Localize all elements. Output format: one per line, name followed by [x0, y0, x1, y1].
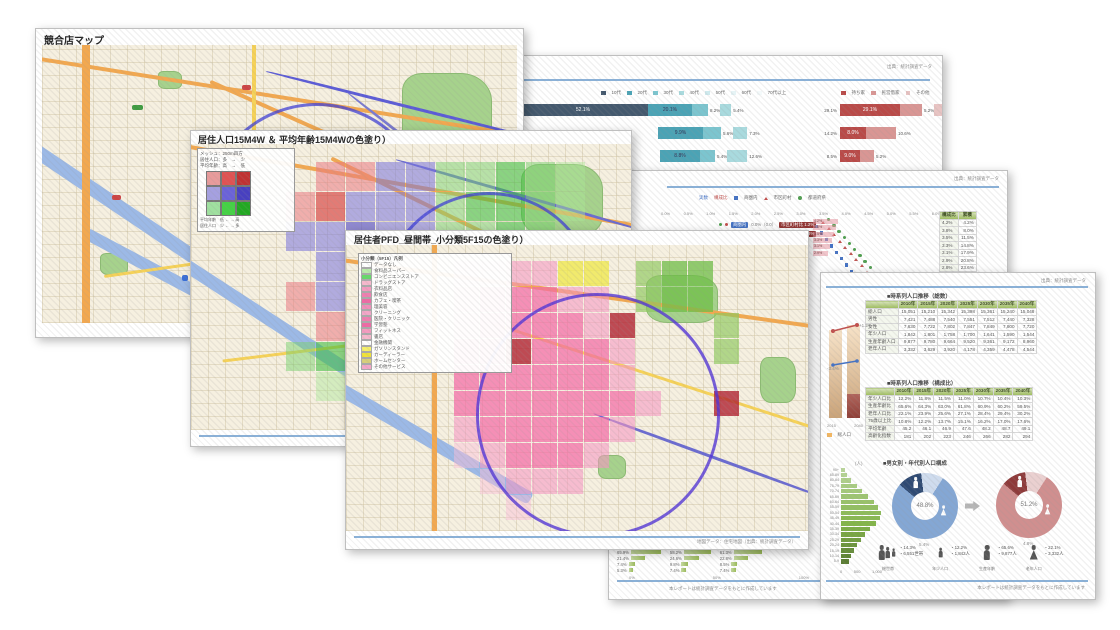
axis-tick-label: 4.5%: [864, 211, 873, 216]
pareto-row-label: 2.9%: [813, 251, 828, 256]
mesh-cell: [436, 162, 465, 191]
scatter-point: [830, 244, 833, 247]
axis-tick-label: 0: [840, 569, 842, 574]
axis-tick-label: 2040: [854, 423, 863, 428]
age-pyramid: 90+85-8980-8475-7970-7465-6960-6455-5950…: [824, 467, 881, 564]
bar-outside-label: 5.2%: [924, 108, 934, 113]
people-stat-label: 総世帯: [879, 566, 897, 572]
pyramid-bar: [841, 478, 852, 482]
pyramid-age-label: 40-44: [824, 522, 839, 526]
scatter-point: [840, 257, 843, 260]
axis-tick-label: 3.5%: [819, 211, 828, 216]
matrix-cell: [206, 171, 221, 186]
mini-bar: [684, 550, 711, 555]
donut-center-label: 51.2%: [1015, 491, 1043, 519]
bar-segment: 29.1%: [840, 104, 900, 116]
table-header-cell: 構成比: [940, 212, 959, 220]
pyramid-bar: [841, 473, 848, 477]
bar-outside-label: 10.6%: [898, 131, 911, 136]
pyramid-age-label: 75-79: [824, 484, 839, 488]
mesh-cell: [584, 261, 609, 286]
legend-label: 70代以上: [768, 90, 787, 96]
table-row: 生産年齢比65.6%64.3%63.0%61.8%60.9%60.2%59.5%: [866, 403, 1033, 411]
table-cell: 9,780: [918, 338, 938, 346]
mesh-cell: [496, 162, 525, 191]
map-label-chip: [112, 195, 121, 200]
table-cell: 1,544: [1017, 331, 1037, 339]
table-cell: 1,801: [918, 331, 938, 339]
pyramid-bar: [841, 500, 875, 504]
report-page-population: 出典：統計調査データ ■時系列人口推移（総数） 2010年2015年2020年2…: [820, 272, 1096, 600]
legend-label: 30代: [664, 90, 674, 96]
table-cell: 61.8%: [953, 403, 973, 411]
section-title-3: ■男女別・年代別人口構成: [883, 459, 947, 467]
map-label-chip: [132, 105, 143, 110]
donut-chart-male: 48.8%: [892, 473, 958, 539]
mini-bar-row: 7.4%: [720, 567, 762, 573]
bar-outside-label: 8.2%: [710, 108, 720, 113]
pyramid-age-label: 20-24: [824, 543, 839, 547]
trend-x-labels: 20152040: [827, 423, 863, 428]
pfd-legend-row: その他サービス: [361, 364, 509, 370]
scatter-point: [843, 246, 847, 249]
mesh-cell: [316, 222, 345, 251]
table-cell: 7,488: [918, 316, 938, 324]
mini-bar-label: 21.4%: [617, 556, 629, 561]
axis-tick-label: 2.0%: [751, 211, 760, 216]
scatter-point: [849, 252, 853, 255]
table-cell: 7,722: [918, 323, 938, 331]
mini-bar: [684, 556, 699, 561]
report-header-note: 出典：統計調査データ: [954, 176, 999, 182]
table-row: 3.8%8.0%: [940, 227, 977, 235]
legend-label: 実数: [699, 195, 708, 201]
pyramid-age-label: 60-64: [824, 500, 839, 504]
mini-bar: [629, 562, 635, 567]
scatter-point: [835, 251, 838, 254]
mesh-cell: [346, 162, 375, 191]
table-cell: 7,328: [1017, 316, 1037, 324]
mini-bar: [631, 550, 661, 555]
table-cell: 65.6%: [894, 403, 914, 411]
mini-bar: [734, 556, 748, 561]
table-header-cell: 2030年: [973, 388, 993, 396]
table-header-cell: 2035年: [993, 388, 1013, 396]
table-cell: 11.5%: [934, 395, 954, 403]
legend-swatch: [705, 91, 710, 96]
bar-segment: 20.1%: [648, 104, 692, 116]
arrow-icon: [965, 501, 980, 511]
table-cell: 4,359: [977, 346, 997, 354]
axis-tick-label: 0.5%: [684, 211, 693, 216]
stacked-bar-row: 52.1%20.1%8.2%5.4%: [518, 104, 778, 116]
table-cell: 7,540: [938, 316, 958, 324]
mini-bar-tables: 65.9%21.4%7.4%5.3%58.2%24.6%9.8%7.4%61.3…: [617, 549, 762, 573]
mesh-cell: [286, 342, 315, 371]
table-cell: 17.0%: [993, 418, 1013, 426]
people-stats-row: 総世帯・14.3%・6,551世帯年少人口・12.2%・1,842人生産年齢・6…: [879, 545, 1064, 572]
legend-swatch: [841, 91, 846, 96]
mini-bar-label: 65.9%: [617, 550, 629, 555]
mesh-cell: [406, 162, 435, 191]
people-stat-item: 老年人口・22.1%・3,332人: [1026, 545, 1064, 572]
street-map: 小分類（5F15）凡例 データなし食料品スーパーコンビニエンスストアドラッグスト…: [346, 245, 808, 531]
table-cell: 266: [973, 433, 993, 441]
mesh-cell: [316, 252, 345, 281]
table-cell: 63.0%: [934, 403, 954, 411]
bar-segment: 8.8%: [660, 150, 700, 162]
pareto-row-label: 3.1%: [813, 244, 830, 249]
mesh-cell: [316, 312, 345, 341]
scatter-point: [838, 240, 842, 243]
mini-bar-label: 7.4%: [617, 562, 627, 567]
mesh-cell: [636, 261, 661, 286]
table-cell: 45.2: [894, 425, 914, 433]
pyramid-age-label: 35-39: [824, 527, 839, 531]
table-row: 75歳以上比10.8%12.2%13.7%15.1%16.2%17.0%17.6…: [866, 418, 1033, 426]
matrix-cell: [236, 171, 251, 186]
trend-legend: 総人口: [827, 432, 851, 438]
table-cell: 15,361: [977, 308, 997, 316]
table-cell: 高齢化指数: [866, 433, 895, 441]
scatter-point: [863, 260, 866, 263]
legend-marker: [764, 197, 768, 200]
pyramid-bar: [841, 521, 876, 525]
mini-bar: [731, 562, 737, 567]
bar-lead-label: 14.2%: [811, 131, 837, 136]
table-cell: 15,048: [1017, 308, 1037, 316]
pyramid-bar: [841, 532, 865, 536]
table-cell: 7,421: [898, 316, 918, 324]
pfd-legend-items: データなし食料品スーパーコンビニエンスストアドラッグストア衣料品店飲食店カフェ・…: [361, 262, 509, 370]
mini-bar-row: 7.4%: [670, 567, 711, 573]
mesh-cell: [376, 162, 405, 191]
mini-bar-block: 58.2%24.6%9.8%7.4%: [670, 549, 711, 573]
map-footer: 地図データ：住宅地図（出典：統計調査データ）: [697, 539, 796, 545]
table-cell: 30.2%: [1013, 410, 1033, 418]
table-header-cell: 累積: [958, 212, 976, 220]
trade-area-ring: [476, 293, 720, 531]
table-cell: 13.7%: [934, 418, 954, 426]
legend-label: 民営借家: [882, 90, 900, 96]
header-rule: [667, 186, 999, 188]
bar-segment: [720, 104, 731, 116]
bar-segment: [700, 150, 715, 162]
axis-tick-label: 3.0%: [796, 211, 805, 216]
table-cell: 17.6%: [1013, 418, 1033, 426]
section-title-1: ■時系列人口推移（総数）: [887, 292, 951, 300]
axis-tick-label: 5.5%: [909, 211, 918, 216]
mesh-cell: [346, 192, 375, 221]
pyramid-age-label: 70-74: [824, 489, 839, 493]
table-cell: 3.3%: [940, 242, 959, 250]
donut-center-label: 48.8%: [911, 492, 939, 520]
park-area: [760, 357, 796, 403]
matrix-cell: [221, 171, 236, 186]
pyramid-ticks: 05001,000: [840, 569, 882, 574]
table-cell: 10.7%: [973, 395, 993, 403]
bar-segment: [692, 104, 708, 116]
axis-tick-label: 4.0%: [842, 211, 851, 216]
screenshot-collage: 出典：統計調査データ 10代20代30代40代50代60代70代以上 持ち家民営…: [0, 0, 1120, 630]
mesh-cell: [662, 287, 687, 312]
table-cell: 49.1: [1013, 425, 1033, 433]
table-cell: 11.0%: [953, 395, 973, 403]
pyramid-bar: [841, 548, 855, 552]
scatter-point: [837, 230, 840, 233]
bar-outside-label: 5.6%: [723, 131, 733, 136]
table-cell: 10.3%: [1013, 395, 1033, 403]
pareto-row-label: 3.8%: [813, 225, 836, 230]
table-header-cell: 2020年: [934, 388, 954, 396]
bar-outside-label: 5.4%: [733, 108, 743, 113]
bar-segment: [866, 127, 896, 139]
table-cell: 59.5%: [1013, 403, 1033, 411]
legend-housing: 持ち家民営借家その他: [841, 90, 930, 96]
table-cell: 8.0%: [958, 227, 976, 235]
table-cell: 60.9%: [973, 403, 993, 411]
table-row: 総人口15,05115,21015,34215,39815,36115,2401…: [866, 308, 1037, 316]
table-row: 老年人口比22.1%23.9%25.6%27.1%28.4%29.4%30.2%: [866, 410, 1033, 418]
mini-bar: [629, 568, 633, 573]
table-row: 女性7,6307,7227,8027,8477,8497,8007,720: [866, 323, 1037, 331]
table-row: 3.1%17.9%: [940, 249, 977, 257]
legend-swatch: [906, 91, 911, 96]
table-header-cell: 2025年: [958, 301, 978, 309]
table-cell: 1,758: [938, 331, 958, 339]
axis-tick-label: 0.0%: [661, 211, 670, 216]
table-cell: 生産年齢比: [866, 403, 895, 411]
table-cell: 7,849: [977, 323, 997, 331]
mesh-cell: [316, 162, 345, 191]
pyramid-bar: [841, 489, 863, 493]
table-header-cell: 2025年: [953, 388, 973, 396]
legend-swatch: [679, 91, 684, 96]
map-label-chip: [242, 85, 251, 90]
legend-swatch: [653, 91, 658, 96]
axis-tick-label: 1.0%: [706, 211, 715, 216]
pyramid-bar: [841, 484, 857, 488]
mini-bar-row: 5.3%: [617, 567, 661, 573]
scatter-point: [858, 254, 861, 257]
mini-bar: [731, 568, 736, 573]
table-cell: 25.6%: [934, 410, 954, 418]
table-cell: 4,478: [997, 346, 1017, 354]
table-header-cell: 2035年: [997, 301, 1017, 309]
legend-marker: [798, 196, 803, 201]
map-page-pfd-mesh: 居住者PFD_昼間帯_小分類5F15の色塗り） 小分類（5F15）凡例 データな…: [345, 230, 809, 550]
mini-bar-label: 22.8%: [720, 556, 732, 561]
table-cell: 15,240: [997, 308, 1017, 316]
table-row: 年少人口1,8421,8011,7581,7001,6411,5901,544: [866, 331, 1037, 339]
bar-outside-label: 12.6%: [749, 154, 762, 159]
bar-segment: 9.0%: [840, 150, 860, 162]
table-cell: 3.8%: [940, 227, 959, 235]
bar-segment: 52.1%: [518, 104, 648, 116]
table-cell: 老年人口比: [866, 410, 895, 418]
bar-segment: [860, 150, 874, 162]
report-header-note: 出典：統計調査データ: [887, 64, 932, 70]
matrix-cell: [206, 186, 221, 201]
table-cell: 10.4%: [993, 395, 1013, 403]
table-cell: 223: [934, 433, 954, 441]
mesh-cell: [556, 192, 585, 221]
pfd-legend-label: その他サービス: [374, 364, 406, 370]
bar-segment: [727, 150, 747, 162]
mesh-cell: [556, 162, 585, 191]
people-stat-values: ・22.1%・3,332人: [1044, 545, 1064, 556]
table-cell: 2.8%: [940, 264, 959, 272]
people-stat-label: 老年人口: [1026, 566, 1042, 572]
mini-bar-block: 61.3%22.8%8.5%7.4%: [720, 549, 762, 573]
table-cell: 46.9: [934, 425, 954, 433]
table-header-cell: 2040年: [1013, 388, 1033, 396]
table-cell: 9,664: [938, 338, 958, 346]
people-stat-label: 年少人口: [932, 566, 948, 572]
table-cell: 27.1%: [953, 410, 973, 418]
table-row: 2.9%20.8%: [940, 257, 977, 265]
mini-bar-label: 8.5%: [720, 562, 730, 567]
table-cell: 282: [993, 433, 1013, 441]
table-cell: 7,551: [958, 316, 978, 324]
pyramid-bar: [841, 543, 857, 547]
pyramid-age-label: 80-84: [824, 478, 839, 482]
report-footer: 本レポートは統計調査データをもとに作成しています: [669, 586, 777, 592]
table-cell: 3,332: [898, 346, 918, 354]
table-cell: 1,842: [898, 331, 918, 339]
bar-segment: [703, 127, 721, 139]
legend-swatch: [757, 91, 762, 96]
pyramid-row: 5-9: [824, 559, 881, 564]
table-cell: 12.2%: [914, 418, 934, 426]
bar-outside-label: 7.3%: [749, 131, 759, 136]
table-cell: 14.8%: [958, 242, 976, 250]
table-cell: 4.2%: [958, 219, 976, 227]
axis-tick-label: 5.0%: [887, 211, 896, 216]
people-stat-values: ・12.2%・1,842人: [950, 545, 970, 556]
pyramid-age-label: 45-49: [824, 516, 839, 520]
pyramid-bar: [841, 494, 868, 498]
stacked-bars-red: 29.1%29.1%5.2%3.8%14.2%8.0%10.6%8.5%9.0%…: [811, 104, 936, 173]
table-row: 老年人口3,3323,6293,9204,1784,3594,4784,544: [866, 346, 1037, 354]
table-row: 高齢化指数181202223246266282294: [866, 433, 1033, 441]
axis-tick-label: 2.5%: [774, 211, 783, 216]
mesh-cell: [688, 287, 713, 312]
table-row: 2.8%23.6%: [940, 264, 977, 272]
table-cell: 9,520: [958, 338, 978, 346]
map-title: 競合店マップ: [44, 32, 104, 47]
mini-bar: [681, 568, 686, 573]
mesh-cell: [454, 443, 479, 468]
mini-bar-label: 7.4%: [720, 568, 730, 573]
mesh-cell: [714, 339, 739, 364]
trend-lines: [825, 315, 875, 375]
table-header-cell: 2040年: [1017, 301, 1037, 309]
pyramid-age-label: 25-29: [824, 538, 839, 542]
legend-label: その他: [916, 90, 930, 96]
table-row: 男性7,4217,4887,5407,5517,5127,4407,328: [866, 316, 1037, 324]
table-cell: 7,630: [898, 323, 918, 331]
trend-legend-swatch: [827, 433, 832, 438]
table-cell: 46.1: [914, 425, 934, 433]
table-cell: 11.8%: [914, 395, 934, 403]
mesh-cell: [316, 282, 345, 311]
legend-note-line: 平均年齢：高 → 低: [200, 163, 292, 169]
pfd-legend: 小分類（5F15）凡例 データなし食料品スーパーコンビニエンスストアドラッグスト…: [358, 253, 512, 373]
legend-label: 持ち家: [852, 90, 866, 96]
mesh-legend-axes: 平均年齢 低 ← → 高居住人口 少 ← → 多: [200, 217, 292, 229]
table-cell: 8,960: [1017, 338, 1037, 346]
mesh-cell: [714, 313, 739, 338]
dot-marker: [725, 223, 728, 226]
mini-bar-label: 58.2%: [670, 550, 682, 555]
pyramid-bar: [841, 505, 879, 509]
table-cell: 7,512: [977, 316, 997, 324]
mini-bar-label: 9.8%: [670, 562, 680, 567]
bar-segment: 9.9%: [658, 127, 703, 139]
pyramid-age-label: 85-89: [824, 473, 839, 477]
scatter-point: [869, 266, 872, 269]
pyramid-age-label: 90+: [824, 468, 839, 472]
pyramid-bar: [841, 516, 880, 520]
legend-label: 都道府県: [808, 195, 826, 201]
dot-marker: [719, 223, 722, 226]
table-cell: 23.9%: [914, 410, 934, 418]
table-cell: 3,629: [918, 346, 938, 354]
table-header-cell: [866, 301, 899, 309]
table-cell: 3.1%: [940, 249, 959, 257]
section-title-2: ■時系列人口推移（構成比）: [887, 379, 956, 387]
axis-tick-label: 2015: [827, 423, 836, 428]
table-cell: 28.4%: [973, 410, 993, 418]
table-cell: 2.9%: [940, 257, 959, 265]
table-row: 年少人口比12.2%11.8%11.5%11.0%10.7%10.4%10.3%: [866, 395, 1033, 403]
pyramid-bar: [841, 559, 849, 563]
pyramid-row: 45-49: [824, 516, 881, 521]
mesh-cell: [526, 162, 555, 191]
mesh-cell: [466, 162, 495, 191]
bar-lead-label: 8.5%: [811, 154, 837, 159]
table-cell: 4,178: [958, 346, 978, 354]
mini-bar: [681, 562, 688, 567]
table-cell: 7,720: [1017, 323, 1037, 331]
people-stat-item: 年少人口・12.2%・1,842人: [932, 545, 970, 572]
table-cell: 平均年齢: [866, 425, 895, 433]
table-header-cell: 2010年: [894, 388, 914, 396]
table-cell: 75歳以上比: [866, 418, 895, 426]
mini-bar: [734, 550, 762, 555]
pyramid-age-label: 5-9: [824, 559, 839, 563]
legend-label: 商圏内: [744, 195, 758, 201]
legend-marker: [734, 196, 739, 201]
pyramid-age-label: 30-34: [824, 532, 839, 536]
mesh-cell: [316, 342, 345, 371]
mesh-cell: [662, 261, 687, 286]
map-title: 居住人口15M4W ＆ 平均年齢15M4Wの色塗り）: [198, 133, 391, 146]
scatter-point: [845, 263, 848, 266]
child-icon: [932, 545, 948, 565]
table-row: 平均年齢45.246.146.947.648.248.749.1: [866, 425, 1033, 433]
mini-bar: [631, 556, 645, 561]
table-cell: 181: [894, 433, 914, 441]
axis-tick-label: 500: [854, 569, 861, 574]
header-rule: [524, 79, 930, 81]
chip-row: 商圏内0.0%（0.0）市区町村比 1.2%: [719, 220, 816, 229]
table-cell: 15,210: [918, 308, 938, 316]
person-icon-female: [1045, 504, 1050, 515]
scatter-point: [860, 264, 864, 267]
bar-segment: [900, 104, 922, 116]
